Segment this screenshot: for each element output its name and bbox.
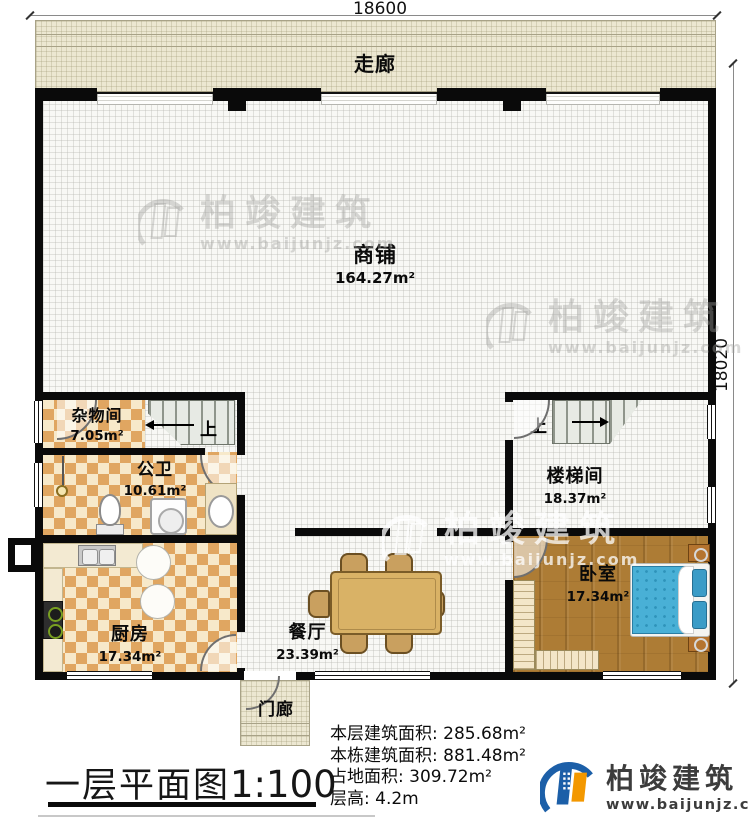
storefront-line	[35, 92, 716, 94]
pillow	[692, 569, 707, 597]
chair	[385, 632, 413, 654]
sink-icon	[208, 495, 234, 528]
wall-stairwell-left	[505, 392, 513, 402]
wall-shop-dining-stub	[295, 528, 390, 536]
window	[34, 463, 43, 507]
nightstand	[688, 544, 710, 562]
round-table	[140, 584, 175, 619]
dimension-tick	[728, 679, 737, 688]
dining-label: 餐厅 23.39m²	[255, 622, 360, 663]
wall-storage-bathroom	[35, 448, 205, 455]
dimension-tick	[712, 11, 721, 20]
corridor-edge-line	[36, 34, 715, 35]
window	[707, 405, 716, 439]
column-stub	[503, 101, 521, 111]
window	[707, 487, 716, 523]
storage-label: 杂物间 7.05m²	[52, 406, 142, 444]
light-fixture-icon	[56, 485, 68, 497]
right-dimension-line	[733, 62, 734, 682]
window	[315, 671, 430, 680]
window	[603, 671, 681, 680]
brand-logo: 柏竣建筑 www.baijunjz.com	[540, 760, 750, 818]
wall-bedroom-left	[505, 580, 513, 680]
pull-cord	[62, 456, 64, 486]
title-underline	[48, 802, 316, 807]
stat-building-area: 本栋建筑面积: 881.48m²	[330, 746, 526, 768]
stat-land-area: 占地面积: 309.72m²	[330, 767, 526, 789]
kitchen-sink-icon	[78, 545, 116, 566]
storefront-pier	[437, 88, 546, 101]
round-table	[136, 545, 171, 580]
pillow	[692, 601, 707, 629]
stove-icon	[43, 601, 63, 639]
page-title: 一层平面图1:100	[45, 757, 337, 808]
storefront-pier	[660, 88, 716, 101]
shop-label: 商铺 164.27m²	[290, 243, 460, 287]
wall-left-center	[237, 392, 245, 455]
bathroom-label: 公卫 10.61m²	[105, 460, 205, 500]
wall-stairwell-top	[505, 392, 716, 400]
storefront-pier	[213, 88, 321, 101]
floor-plan-page: 18600 18020 走廊	[0, 0, 750, 829]
porch-label: 门廊	[248, 700, 304, 720]
wall-stairwell-left	[505, 440, 513, 542]
corridor-label: 走廊	[300, 52, 450, 76]
baijun-logo-icon	[540, 760, 598, 818]
title-underline-thin	[38, 815, 375, 817]
stairs-up-label: 上	[200, 415, 217, 440]
flue-box	[8, 538, 38, 572]
stairs-arrowhead-icon	[145, 420, 154, 430]
stairs-arrowhead-icon	[600, 417, 609, 427]
building-stats: 本层建筑面积: 285.68m² 本栋建筑面积: 881.48m² 占地面积: …	[330, 724, 526, 810]
stat-floor-height: 层高: 4.2m	[330, 789, 526, 811]
stairwell-label: 楼梯间 18.37m²	[520, 466, 630, 507]
washing-machine-icon	[150, 498, 187, 535]
wall-bathroom-kitchen	[35, 535, 245, 543]
wardrobe	[535, 650, 599, 670]
window	[34, 401, 43, 443]
outer-wall-left	[35, 92, 43, 680]
wardrobe	[513, 580, 535, 670]
window	[67, 671, 152, 680]
stairs-direction-arrow	[152, 424, 194, 426]
wall-stairwell-bedroom	[505, 528, 716, 536]
column-stub	[228, 101, 246, 111]
corridor-edge-line	[36, 46, 715, 47]
stairs-direction-arrow	[572, 421, 602, 423]
bedroom-label: 卧室 17.34m²	[548, 564, 648, 605]
wall-left-center	[237, 495, 245, 632]
top-dimension-label: 18600	[340, 0, 420, 19]
chair	[308, 590, 330, 618]
stat-floor-area: 本层建筑面积: 285.68m²	[330, 724, 526, 746]
wall-storage-top	[35, 392, 245, 400]
storefront-pier	[35, 88, 97, 101]
kitchen-label: 厨房 17.34m²	[80, 624, 180, 665]
